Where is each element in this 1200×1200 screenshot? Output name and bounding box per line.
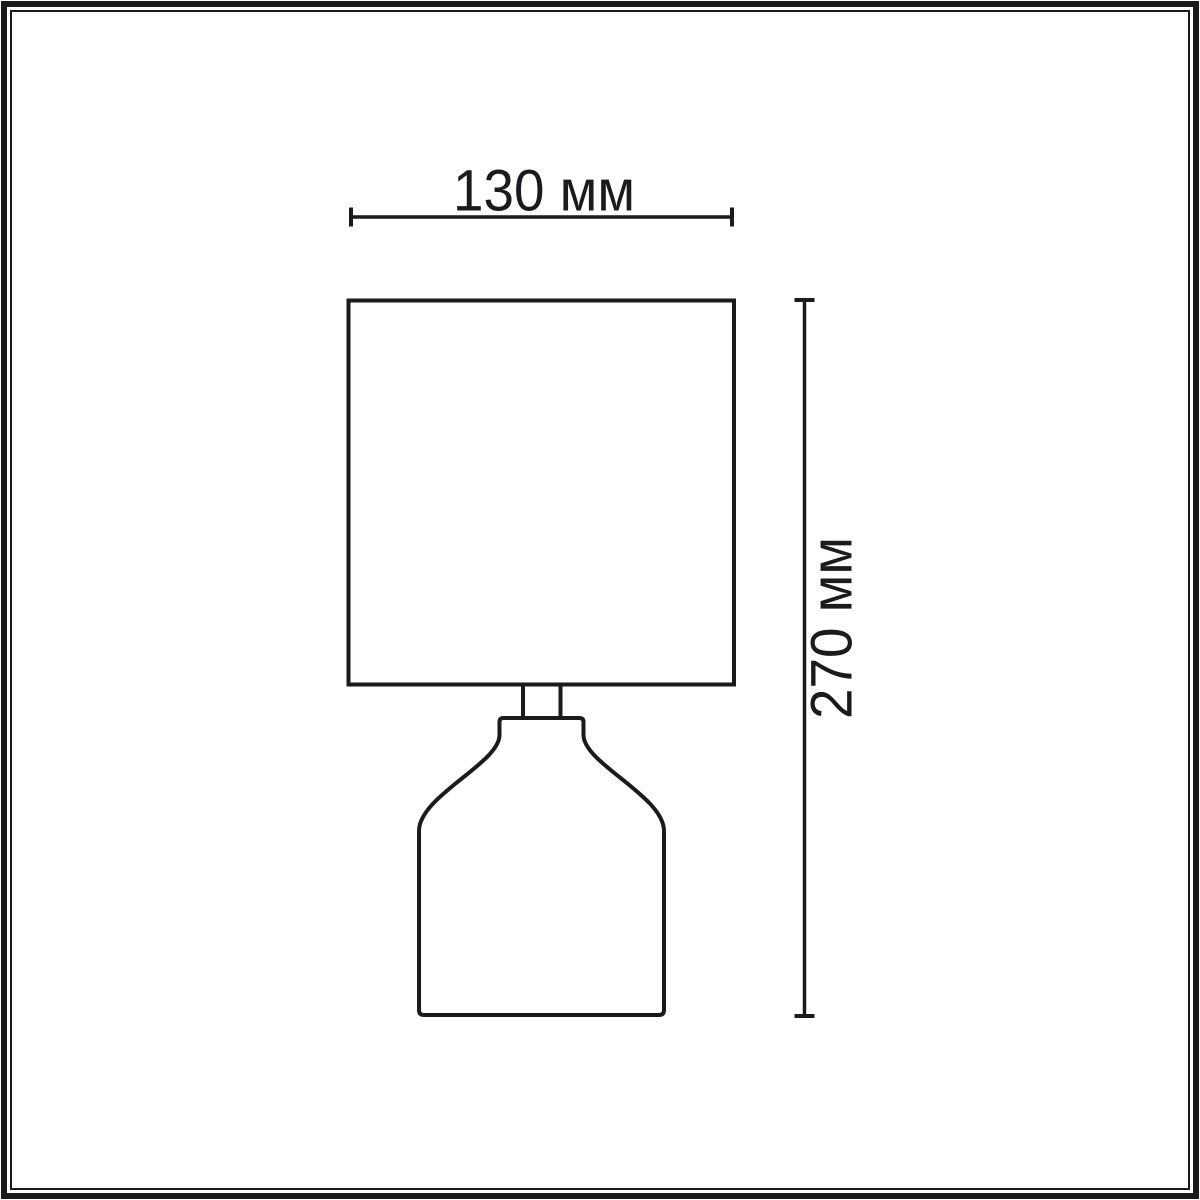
svg-text:270 мм: 270 мм [800,537,865,719]
svg-text:130 мм: 130 мм [453,159,635,224]
